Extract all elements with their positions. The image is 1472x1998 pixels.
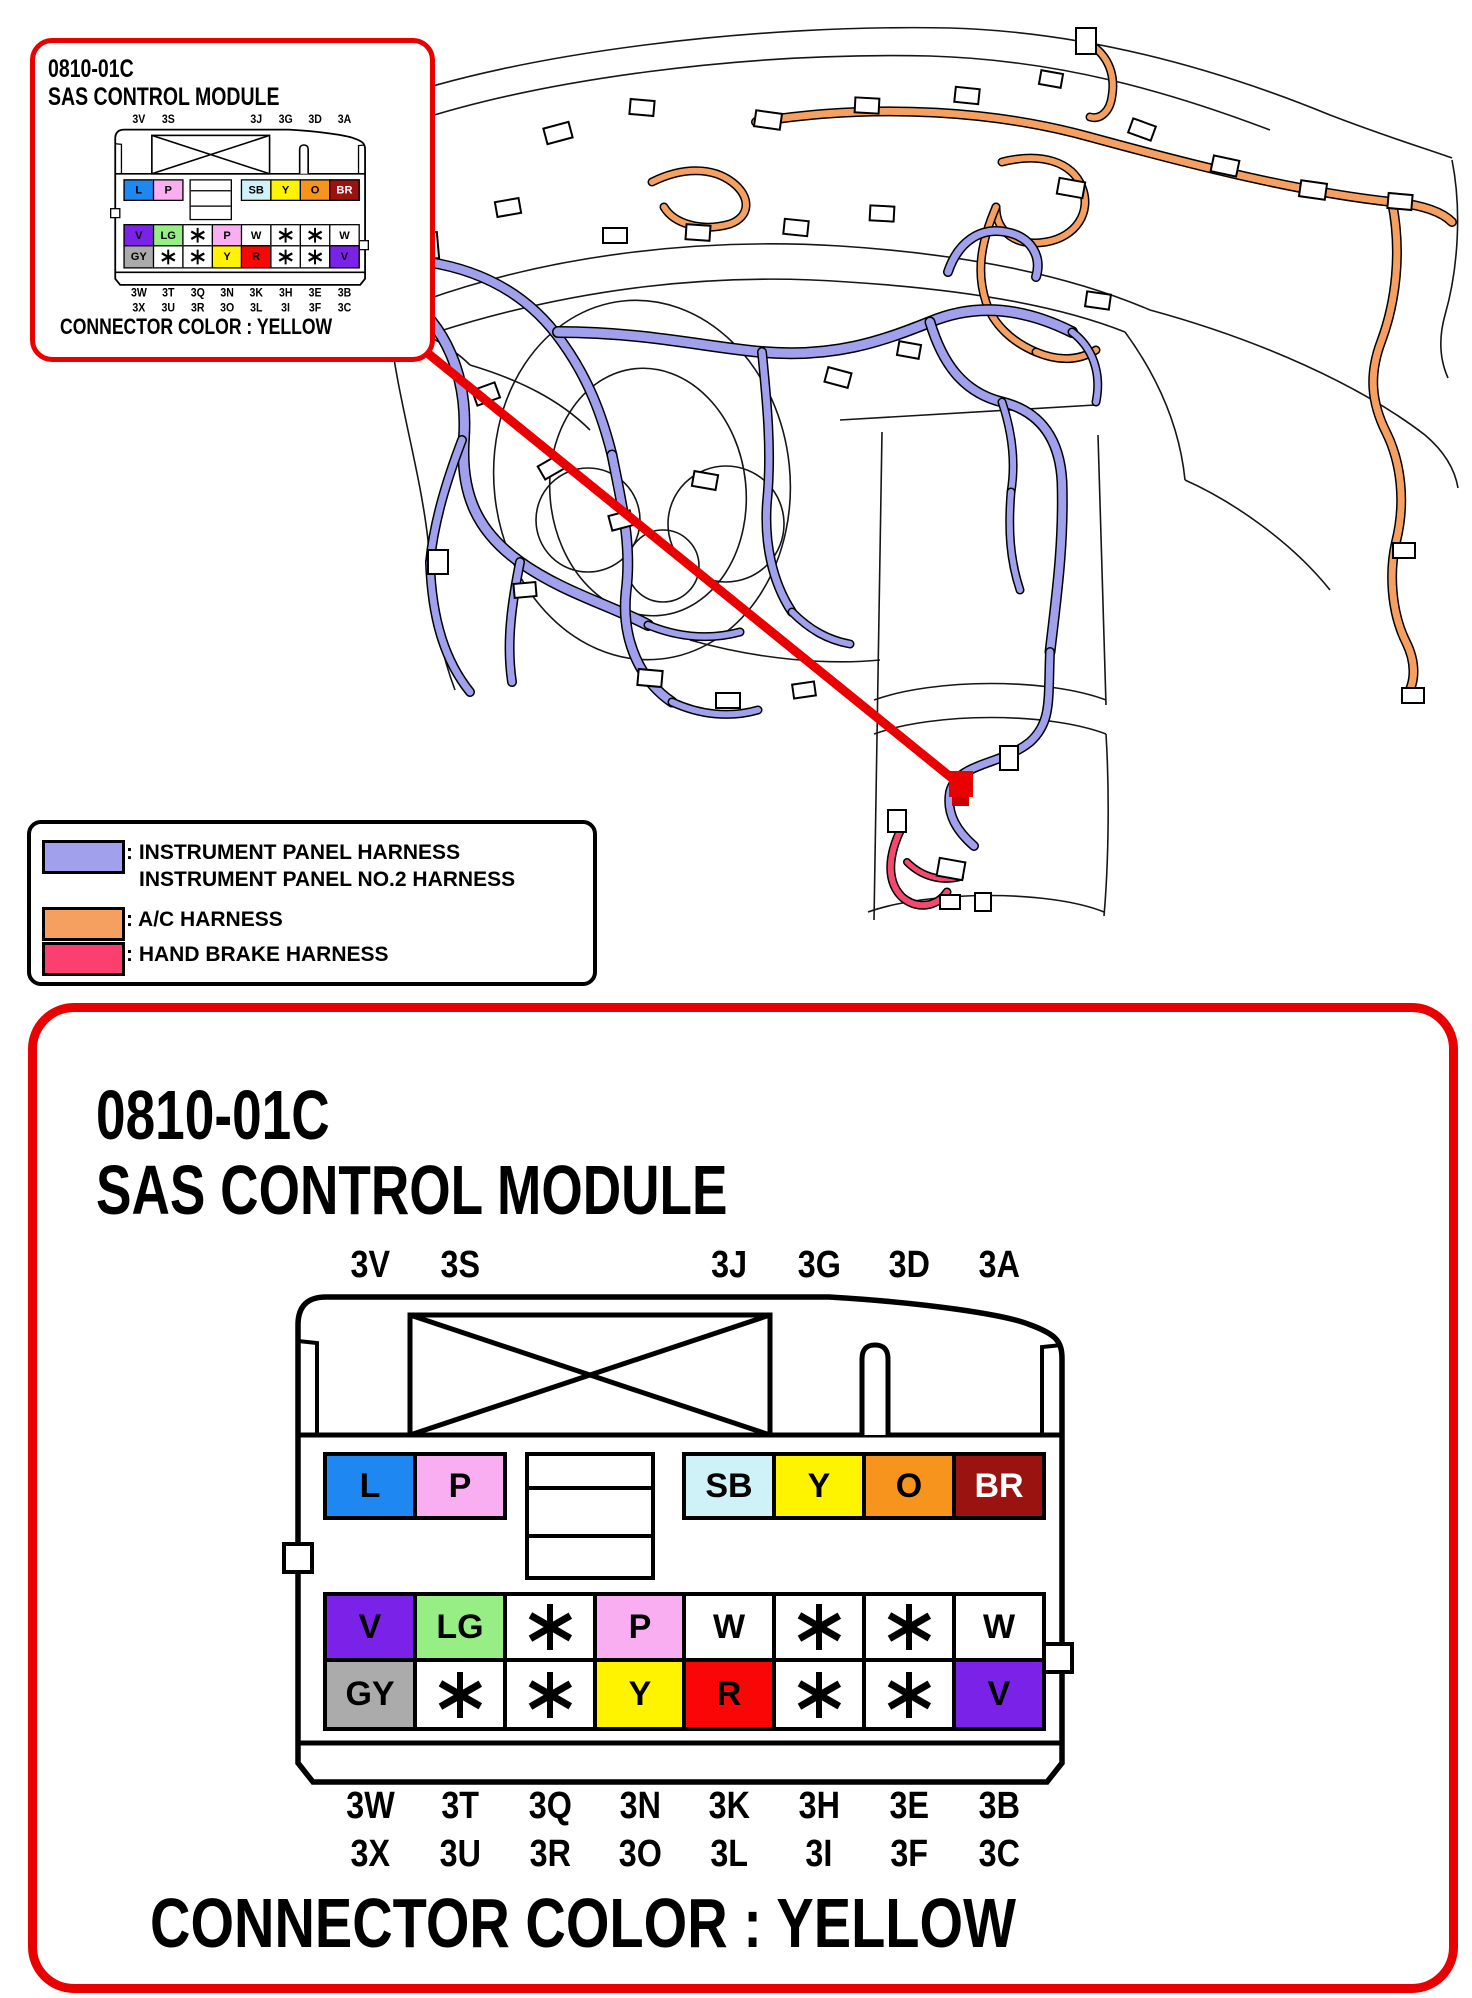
pin-wire-color: SB bbox=[248, 184, 263, 196]
pin-cell-SB: SB bbox=[682, 1452, 776, 1520]
harness-connector bbox=[1387, 193, 1412, 210]
legend-label: : HAND BRAKE HARNESS bbox=[126, 940, 389, 970]
pin-label-3L: 3L bbox=[682, 1834, 776, 1874]
pin-label-3U: 3U bbox=[153, 301, 184, 314]
connector-pinout-large: 3V3S3J3G3D3ALPSBYOBRVLGPWWGYYRV3W3T3Q3N3… bbox=[230, 1245, 1110, 1875]
pin-wire-color: O bbox=[311, 184, 320, 196]
pin-cell-unused bbox=[772, 1592, 866, 1662]
connector-code-small: 0810-01C bbox=[48, 56, 158, 83]
pin-label-3D: 3D bbox=[862, 1245, 956, 1285]
harness-connector bbox=[954, 87, 979, 104]
asterisk-symbol bbox=[278, 228, 294, 243]
pin-label-3E: 3E bbox=[300, 286, 331, 299]
pin-wire-color: LG bbox=[436, 1608, 483, 1647]
harness-connector bbox=[716, 693, 740, 708]
pin-cell-LG: LG bbox=[413, 1592, 507, 1662]
harness-connector bbox=[937, 858, 966, 880]
pin-wire-color: SB bbox=[705, 1467, 752, 1506]
side-tab-right bbox=[359, 241, 368, 250]
harness-connector bbox=[692, 471, 718, 490]
pin-label-3T: 3T bbox=[413, 1786, 507, 1826]
harness-connector bbox=[1402, 688, 1424, 703]
connector-color-note-small: CONNECTOR COLOR : YELLOW bbox=[60, 315, 400, 339]
asterisk-symbol bbox=[795, 1604, 843, 1650]
pin-cell-P: P bbox=[153, 179, 184, 201]
asterisk-symbol bbox=[278, 249, 294, 264]
pin-label-3K: 3K bbox=[682, 1786, 776, 1826]
pin-wire-color: L bbox=[135, 184, 142, 196]
pin-label-3A: 3A bbox=[952, 1245, 1046, 1285]
pin-cell-unused bbox=[153, 245, 184, 268]
pin-cell-BR: BR bbox=[329, 179, 360, 201]
harness-connector bbox=[428, 550, 448, 574]
legend-swatch bbox=[42, 840, 125, 874]
pin-cell-R: R bbox=[682, 1658, 776, 1731]
side-tab-right bbox=[1044, 1644, 1072, 1672]
pin-wire-color: R bbox=[717, 1675, 742, 1714]
harness-connector bbox=[1000, 746, 1018, 770]
pin-wire-color: P bbox=[165, 184, 172, 196]
pin-label-3C: 3C bbox=[329, 301, 360, 314]
pin-cell-W: W bbox=[329, 224, 360, 246]
pin-wire-color: R bbox=[252, 251, 260, 263]
pin-label-3B: 3B bbox=[952, 1786, 1046, 1826]
harness-connector bbox=[783, 219, 808, 236]
harness-connector bbox=[1085, 291, 1111, 309]
pin-cell-R: R bbox=[241, 245, 272, 268]
harness-connector bbox=[637, 669, 662, 687]
pin-label-3I: 3I bbox=[270, 301, 301, 314]
legend-label: : A/C HARNESS bbox=[126, 905, 283, 935]
harness-connector bbox=[1393, 543, 1415, 558]
pin-label-3S: 3S bbox=[413, 1245, 507, 1285]
harness-connector bbox=[543, 122, 572, 144]
pin-label-3V: 3V bbox=[123, 113, 154, 126]
harness-connector bbox=[975, 893, 991, 911]
asterisk-symbol bbox=[526, 1604, 574, 1650]
pin-label-3J: 3J bbox=[241, 113, 272, 126]
pin-label-3A: 3A bbox=[329, 113, 360, 126]
pin-cell-P: P bbox=[413, 1452, 507, 1520]
keyway-block bbox=[525, 1452, 655, 1580]
pin-label-3W: 3W bbox=[123, 286, 154, 299]
pin-label-3R: 3R bbox=[182, 301, 213, 314]
harness-connector bbox=[1299, 180, 1327, 199]
pin-cell-W: W bbox=[682, 1592, 776, 1662]
pin-label-3B: 3B bbox=[329, 286, 360, 299]
harness-connector bbox=[888, 810, 906, 832]
pin-label-3J: 3J bbox=[682, 1245, 776, 1285]
pin-cell-Y: Y bbox=[593, 1658, 687, 1731]
connector-blocks bbox=[406, 28, 1424, 911]
harness-connector bbox=[629, 99, 654, 116]
pin-label-3L: 3L bbox=[241, 301, 272, 314]
harness-connector bbox=[754, 110, 782, 129]
pin-cell-V: V bbox=[329, 245, 360, 268]
asterisk-symbol bbox=[885, 1672, 933, 1718]
pin-wire-color: GY bbox=[131, 251, 147, 263]
pin-cell-P: P bbox=[212, 224, 243, 246]
pin-wire-color: W bbox=[983, 1608, 1015, 1647]
pin-label-3Q: 3Q bbox=[503, 1786, 597, 1826]
pin-label-3O: 3O bbox=[212, 301, 243, 314]
pin-label-3F: 3F bbox=[300, 301, 331, 314]
pin-wire-color: Y bbox=[808, 1467, 831, 1506]
pin-label-3T: 3T bbox=[153, 286, 184, 299]
harness-connector bbox=[792, 682, 816, 699]
harness-connector bbox=[1057, 178, 1085, 198]
connector-housing bbox=[93, 113, 381, 315]
harness-connector bbox=[1128, 118, 1156, 140]
pin-wire-color: V bbox=[135, 229, 142, 241]
pin-label-3F: 3F bbox=[862, 1834, 956, 1874]
pin-cell-unused bbox=[503, 1592, 597, 1662]
harness-connector bbox=[940, 895, 960, 909]
pin-cell-unused bbox=[772, 1658, 866, 1731]
pin-cell-GY: GY bbox=[123, 245, 154, 268]
pin-wire-color: GY bbox=[345, 1675, 394, 1714]
pin-cell-unused bbox=[413, 1658, 507, 1731]
asterisk-symbol bbox=[160, 249, 176, 264]
connector-location-marker bbox=[949, 771, 973, 797]
pin-wire-color: V bbox=[341, 251, 348, 263]
side-tab-left bbox=[284, 1544, 312, 1572]
connector-code-large: 0810-01C bbox=[96, 1078, 403, 1152]
asterisk-symbol bbox=[190, 249, 206, 264]
harness-illustration bbox=[370, 10, 1470, 930]
pin-wire-color: LG bbox=[160, 229, 175, 241]
asterisk-symbol bbox=[795, 1672, 843, 1718]
keyway-slot bbox=[862, 1345, 888, 1435]
pin-label-3C: 3C bbox=[952, 1834, 1046, 1874]
pin-wire-color: L bbox=[360, 1467, 381, 1506]
manual-page: 0810-01C SAS CONTROL MODULE 3V3S3J3G3D3A… bbox=[0, 0, 1472, 1998]
pin-cell-unused bbox=[503, 1658, 597, 1731]
pin-label-3V: 3V bbox=[323, 1245, 417, 1285]
pin-label-3H: 3H bbox=[772, 1786, 866, 1826]
pin-label-3K: 3K bbox=[241, 286, 272, 299]
asterisk-symbol bbox=[307, 228, 323, 243]
pin-cell-Y: Y bbox=[772, 1452, 866, 1520]
legend-swatch bbox=[42, 907, 125, 941]
harness-connector bbox=[1039, 70, 1063, 88]
legend-label: : INSTRUMENT PANEL HARNESS bbox=[126, 838, 460, 868]
connector-color-note-large: CONNECTOR COLOR : YELLOW bbox=[150, 1886, 1232, 1960]
keyway-block bbox=[189, 179, 232, 220]
keyway-slot bbox=[300, 145, 309, 174]
harness-connector bbox=[1076, 28, 1096, 54]
legend-label: INSTRUMENT PANEL NO.2 HARNESS bbox=[139, 865, 515, 895]
asterisk-symbol bbox=[885, 1604, 933, 1650]
harness-connector bbox=[603, 228, 627, 243]
pin-cell-W: W bbox=[952, 1592, 1046, 1662]
harness-connector bbox=[855, 97, 880, 113]
asterisk-symbol bbox=[526, 1672, 574, 1718]
pin-wire-color: V bbox=[988, 1675, 1011, 1714]
pin-wire-color: P bbox=[449, 1467, 472, 1506]
pin-cell-unused bbox=[270, 245, 301, 268]
pin-cell-O: O bbox=[862, 1452, 956, 1520]
pin-cell-LG: LG bbox=[153, 224, 184, 246]
pin-wire-color: P bbox=[223, 229, 230, 241]
pin-wire-color: Y bbox=[282, 184, 289, 196]
pin-label-3G: 3G bbox=[270, 113, 301, 126]
pin-cell-BR: BR bbox=[952, 1452, 1046, 1520]
pin-wire-color: O bbox=[896, 1467, 922, 1506]
pin-label-3O: 3O bbox=[593, 1834, 687, 1874]
pin-wire-color: W bbox=[339, 229, 349, 241]
pin-cell-V: V bbox=[952, 1658, 1046, 1731]
pin-cell-Y: Y bbox=[212, 245, 243, 268]
harness-connector bbox=[495, 198, 521, 217]
pin-cell-P: P bbox=[593, 1592, 687, 1662]
pin-cell-unused bbox=[862, 1592, 956, 1662]
harness-legend: : INSTRUMENT PANEL HARNESSINSTRUMENT PAN… bbox=[27, 820, 597, 986]
asterisk-symbol bbox=[307, 249, 323, 264]
pin-cell-V: V bbox=[123, 224, 154, 246]
pin-label-3X: 3X bbox=[123, 301, 154, 314]
harness-connector bbox=[824, 367, 851, 388]
pin-wire-color: W bbox=[251, 229, 261, 241]
connector-title-small: SAS CONTROL MODULE bbox=[48, 84, 345, 111]
pin-cell-unused bbox=[300, 245, 331, 268]
pin-cell-SB: SB bbox=[241, 179, 272, 201]
callout-pointer bbox=[420, 347, 973, 806]
pin-cell-GY: GY bbox=[323, 1658, 417, 1731]
pin-label-3N: 3N bbox=[593, 1786, 687, 1826]
pin-label-3W: 3W bbox=[323, 1786, 417, 1826]
connector-pinout-small: 3V3S3J3G3D3ALPSBYOBRVLGPWWGYYRV3W3T3Q3N3… bbox=[93, 113, 381, 315]
pin-label-3I: 3I bbox=[772, 1834, 866, 1874]
pin-cell-unused bbox=[300, 224, 331, 246]
legend-swatch bbox=[42, 942, 125, 976]
pin-wire-color: Y bbox=[629, 1675, 652, 1714]
pin-cell-unused bbox=[270, 224, 301, 246]
pin-wire-color: W bbox=[713, 1608, 745, 1647]
harness-connector bbox=[686, 224, 711, 241]
harness-connector bbox=[870, 205, 895, 221]
pin-label-3X: 3X bbox=[323, 1834, 417, 1874]
pin-label-3E: 3E bbox=[862, 1786, 956, 1826]
pin-cell-unused bbox=[182, 245, 213, 268]
harness-connector bbox=[513, 582, 536, 598]
pin-wire-color: BR bbox=[974, 1467, 1023, 1506]
pin-cell-unused bbox=[182, 224, 213, 246]
asterisk-symbol bbox=[436, 1672, 484, 1718]
pin-wire-color: V bbox=[359, 1608, 382, 1647]
pin-cell-V: V bbox=[323, 1592, 417, 1662]
connector-title-large: SAS CONTROL MODULE bbox=[96, 1153, 927, 1227]
pin-cell-L: L bbox=[323, 1452, 417, 1520]
pin-label-3G: 3G bbox=[772, 1245, 866, 1285]
pin-wire-color: Y bbox=[223, 251, 230, 263]
asterisk-symbol bbox=[190, 228, 206, 243]
pin-cell-unused bbox=[862, 1658, 956, 1731]
pin-label-3S: 3S bbox=[153, 113, 184, 126]
pin-cell-W: W bbox=[241, 224, 272, 246]
pin-label-3H: 3H bbox=[270, 286, 301, 299]
pin-cell-Y: Y bbox=[270, 179, 301, 201]
pin-wire-color: P bbox=[629, 1608, 652, 1647]
pin-cell-O: O bbox=[300, 179, 331, 201]
pin-cell-L: L bbox=[123, 179, 154, 201]
pin-label-3U: 3U bbox=[413, 1834, 507, 1874]
connector-housing bbox=[230, 1245, 1110, 1875]
pin-label-3D: 3D bbox=[300, 113, 331, 126]
pin-label-3Q: 3Q bbox=[182, 286, 213, 299]
pin-label-3N: 3N bbox=[212, 286, 243, 299]
harness-connector bbox=[897, 341, 921, 359]
pin-label-3R: 3R bbox=[503, 1834, 597, 1874]
pin-wire-color: BR bbox=[336, 184, 352, 196]
side-tab-left bbox=[111, 209, 120, 218]
